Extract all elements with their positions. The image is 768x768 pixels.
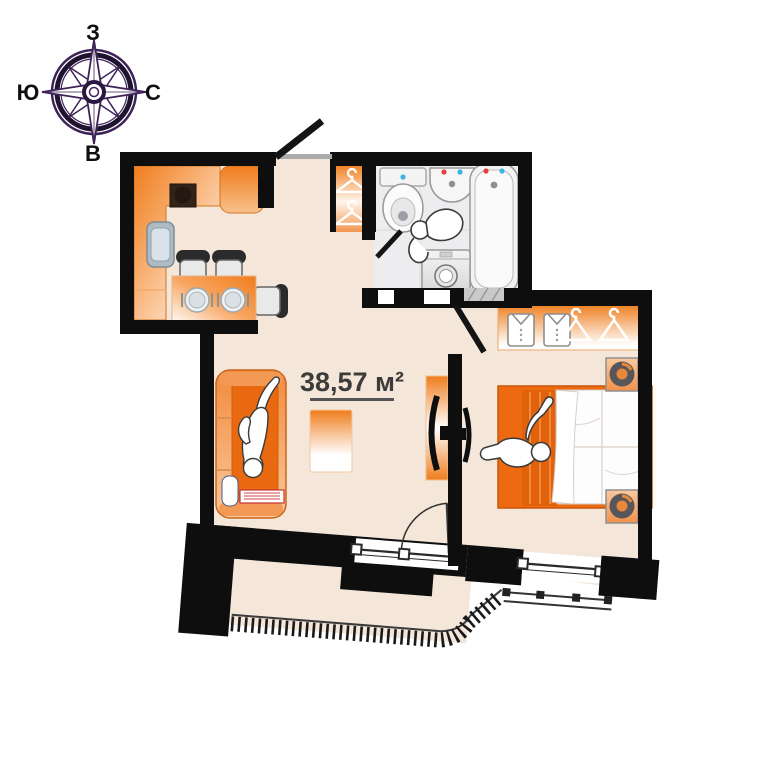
wall — [504, 290, 652, 306]
wall — [120, 320, 258, 334]
wall — [376, 152, 532, 166]
wall — [518, 152, 532, 308]
nightstand-icon — [606, 490, 638, 523]
fridge-icon — [220, 166, 264, 213]
wall — [258, 152, 274, 208]
shirt-icon — [508, 314, 534, 346]
area-label-underline — [310, 398, 394, 401]
compass-label-west: З — [86, 20, 100, 45]
washing-machine-icon — [422, 250, 470, 292]
area-label: 38,57 м² — [300, 367, 404, 401]
floor-plan-page: 38,57 м² З Ю С В — [0, 0, 768, 768]
kitchen-sink-icon — [147, 222, 174, 267]
compass-label-east: В — [85, 141, 101, 166]
wall — [200, 320, 214, 564]
compass-label-south: Ю — [17, 80, 40, 105]
dining-table-icon — [172, 276, 256, 324]
wall — [120, 152, 134, 334]
compass-label-north: С — [145, 80, 161, 105]
compass-rose: З Ю С В — [17, 20, 161, 166]
compass-hub-center — [90, 88, 99, 97]
window-railing — [502, 588, 613, 610]
vent-shaft — [464, 288, 504, 301]
bathtub-icon — [470, 164, 518, 294]
rug-icon — [310, 410, 352, 472]
nightstand-icon — [606, 358, 638, 391]
wall — [120, 152, 276, 166]
wall — [330, 152, 376, 166]
wall — [448, 354, 462, 566]
book-icon — [240, 490, 284, 503]
wall — [330, 164, 336, 232]
door-opening — [378, 290, 394, 304]
wall — [638, 296, 652, 568]
door-opening — [424, 290, 450, 304]
floor-plan-canvas: 38,57 м² З Ю С В — [0, 0, 768, 768]
area-label-text: 38,57 м² — [300, 367, 404, 397]
pillow-icon — [222, 476, 238, 506]
wardrobe-icon — [498, 304, 642, 350]
wall — [362, 166, 375, 240]
entry-door-leaf — [276, 121, 322, 157]
chair-icon — [254, 284, 288, 318]
stove-icon — [170, 184, 196, 207]
